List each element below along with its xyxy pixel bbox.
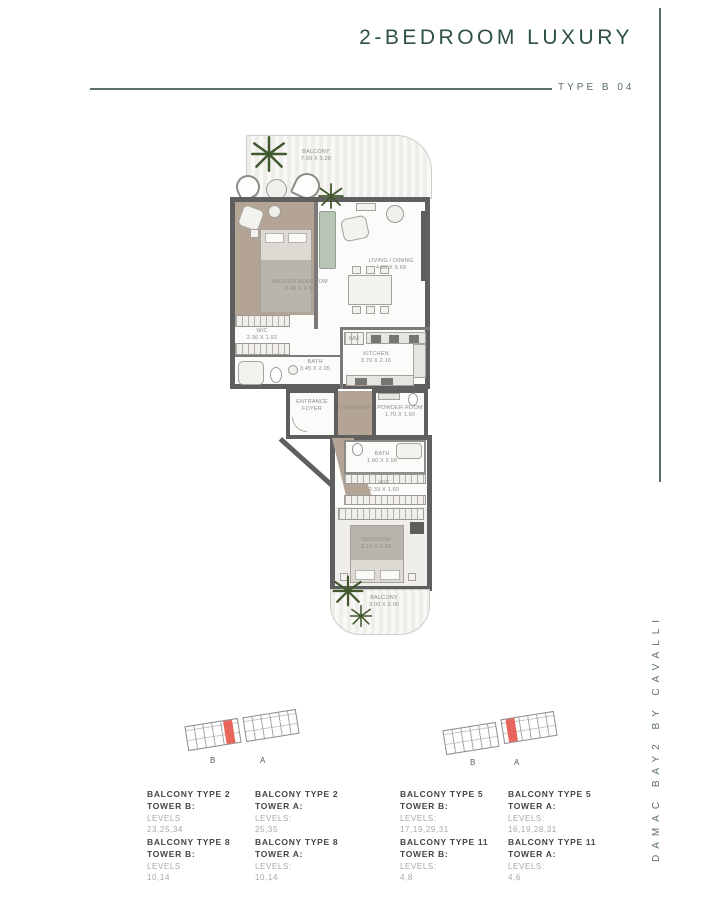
console-table <box>356 203 376 211</box>
room-label-master-bedroom: MASTER BEDROOM 3.40 X 4.54 <box>270 279 330 293</box>
wardrobe-hatch <box>338 508 424 520</box>
room-label-bath-2: BATH 1.60 X 2.58 <box>354 451 410 465</box>
key-plan-tower-a: B A <box>430 706 560 772</box>
dining-chair <box>352 306 361 314</box>
brochure-page: 2-BEDROOM LUXURY TYPE B 04 DAMAC BAY2 BY… <box>0 0 707 900</box>
wardrobe-hatch <box>235 315 290 327</box>
room-label-bedroom-2: BEDROOM 3.10 X 3.52 <box>348 537 404 551</box>
room-label-kitchen: KITCHEN 3.70 X 2.16 <box>350 351 402 365</box>
building-outline-a <box>500 711 557 744</box>
toilet <box>270 367 282 383</box>
nightstand <box>250 229 259 238</box>
interior-wall <box>314 202 318 329</box>
unit-type-label: TYPE B 04 <box>558 82 634 93</box>
legend-item: BALCONY TYPE 11 TOWER B: LEVELS: 4,8 <box>400 836 508 884</box>
page-title: 2-BEDROOM LUXURY <box>213 26 633 50</box>
brand-vertical-text: DAMAC BAY2 BY CAVALLI <box>651 490 662 862</box>
building-outline-b <box>184 718 241 751</box>
vanity-counter <box>378 393 400 400</box>
sofa <box>319 211 336 269</box>
tower-a-label: A <box>260 756 266 765</box>
entrance-foyer <box>286 389 338 439</box>
master-bed <box>260 229 312 311</box>
interior-wall <box>340 327 430 330</box>
legend-item: BALCONY TYPE 2 TOWER A: LEVELS: 25,35 <box>255 788 363 836</box>
tower-b-label: B <box>470 758 476 767</box>
header-divider-line <box>90 88 552 90</box>
wardrobe-unit <box>410 522 424 534</box>
corridor-floor <box>338 391 372 437</box>
side-divider-line <box>659 8 661 482</box>
room-label-living-dining: LIVING / DINING 4.00 X 5.68 <box>362 258 420 272</box>
room-label-wm: WM <box>342 336 366 343</box>
building-outline-b <box>442 722 499 755</box>
wardrobe-hatch <box>235 343 290 355</box>
diagonal-wall <box>279 437 334 488</box>
room-label-powder-room: POWDER ROOM 1.70 X 1.60 <box>376 405 424 419</box>
legend-item: BALCONY TYPE 2 TOWER B: LEVELS: 23,25,34 <box>147 788 255 836</box>
round-chair <box>386 205 404 223</box>
side-table <box>268 205 281 218</box>
dining-chair <box>366 306 375 314</box>
highlighted-unit <box>505 718 517 742</box>
palm-plant-icon <box>316 181 346 211</box>
room-label-wic-2: W/C 2.33 X 1.60 <box>356 480 412 494</box>
building-outline-a <box>242 709 299 742</box>
kitchen-counter <box>413 344 426 378</box>
dining-table <box>348 275 392 305</box>
legend-item: BALCONY TYPE 5 TOWER A: LEVELS: 16,19,28… <box>508 788 616 836</box>
tower-b-label: B <box>210 756 216 765</box>
nightstand <box>408 573 416 581</box>
wardrobe-hatch <box>344 495 426 505</box>
room-label-corridor: CORRIDOR <box>334 405 376 412</box>
key-plan-tower-b: B A <box>170 706 300 772</box>
legend-item: BALCONY TYPE 11 TOWER A: LEVELS: 4,6 <box>508 836 616 884</box>
room-label-entrance-foyer: ENTRANCE FOYER <box>290 399 334 413</box>
palm-plant-icon <box>248 133 290 175</box>
kitchen-counter <box>366 332 426 344</box>
floor-plan: BALCONY 7.00 X 3.28 MASTER BEDROOM 3.40 … <box>228 133 440 638</box>
room-label-wic-master: W/C 2.36 X 1.92 <box>236 328 288 342</box>
legend-item: BALCONY TYPE 8 TOWER B: LEVELS: 10,14 <box>147 836 255 884</box>
palm-plant-icon <box>348 603 374 629</box>
room-label-bath-master: BATH 3.45 X 2.05 <box>290 359 340 373</box>
dining-chair <box>352 266 361 274</box>
legend-item: BALCONY TYPE 8 TOWER A: LEVELS: 10,14 <box>255 836 363 884</box>
interior-wall <box>235 355 340 357</box>
tower-a-label: A <box>514 758 520 767</box>
bathtub <box>238 361 264 385</box>
tv-unit <box>421 211 427 281</box>
room-label-balcony-top: BALCONY 7.00 X 3.28 <box>286 149 346 163</box>
highlighted-unit <box>223 720 235 744</box>
dining-chair <box>380 306 389 314</box>
legend-item: BALCONY TYPE 5 TOWER B: LEVELS: 17,19,29… <box>400 788 508 836</box>
kitchen-counter <box>346 375 414 386</box>
